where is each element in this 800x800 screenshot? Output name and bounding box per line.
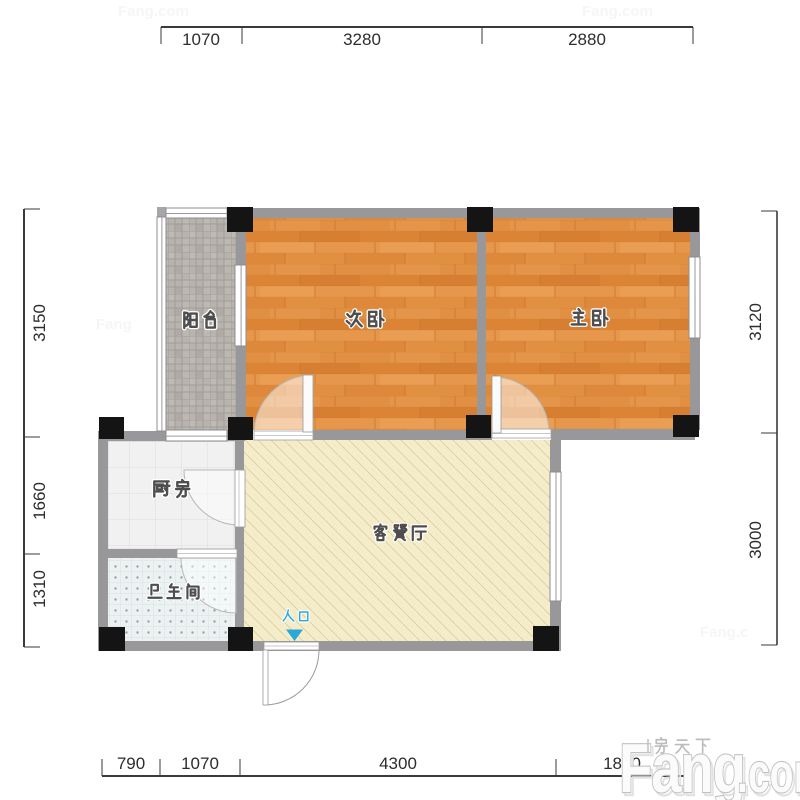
svg-text:1660: 1660 (30, 482, 49, 520)
svg-text:Fang.com: Fang.com (118, 3, 189, 20)
svg-text:Fang.c: Fang.c (700, 624, 748, 641)
svg-text:2880: 2880 (568, 30, 606, 49)
svg-text:3000: 3000 (746, 521, 765, 559)
svg-text:1310: 1310 (30, 570, 49, 608)
svg-text:3150: 3150 (30, 304, 49, 342)
svg-text:790: 790 (117, 754, 145, 773)
svg-text:.com: .com (737, 742, 800, 800)
svg-text:4300: 4300 (379, 754, 417, 773)
svg-text:3280: 3280 (343, 30, 381, 49)
svg-text:Fang.com: Fang.com (582, 3, 653, 20)
svg-text:1070: 1070 (182, 30, 220, 49)
svg-text:1070: 1070 (181, 754, 219, 773)
svg-text:Fang: Fang (96, 316, 132, 333)
svg-text:3120: 3120 (746, 303, 765, 341)
